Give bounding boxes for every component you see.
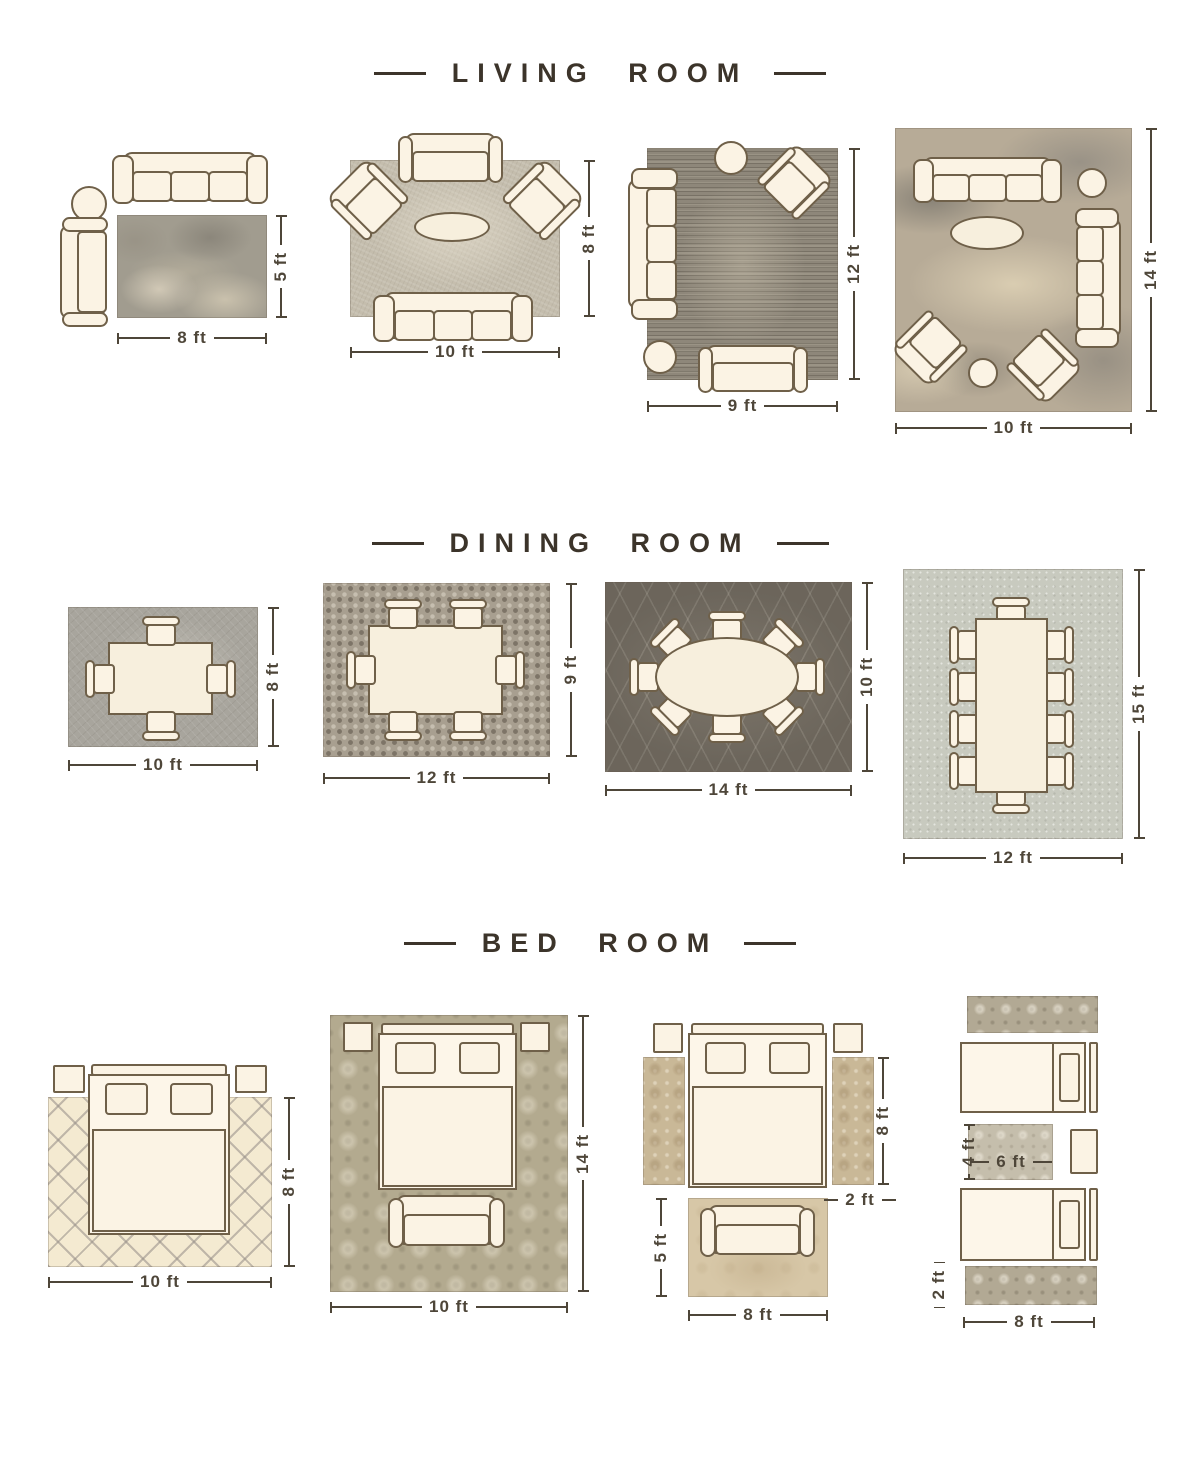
dimension-label: 14 ft: [702, 780, 756, 800]
loveseat: [698, 345, 808, 393]
dining-chair: [1044, 670, 1074, 704]
dimension-label: 14 ft: [573, 1127, 593, 1181]
dining-table: [368, 625, 503, 715]
dining-chair: [346, 653, 376, 687]
dining-table: [108, 642, 213, 715]
dining-chair: [495, 653, 525, 687]
dimension-label: 5 ft: [651, 1226, 671, 1270]
dimension-label: 8 ft: [263, 655, 283, 699]
side-table-round: [1077, 168, 1107, 198]
twin-bed: [960, 1042, 1098, 1113]
loveseat: [398, 133, 503, 183]
dimension-height: 10 ft: [856, 582, 878, 772]
dimension-label: 14 ft: [1141, 243, 1161, 297]
coffee-table-oval: [414, 212, 490, 242]
dimension-foot-rug-width: 8 ft: [688, 1305, 828, 1325]
dimension-label: 15 ft: [1129, 677, 1149, 731]
dimension-width: 8 ft: [117, 328, 267, 348]
dimension-label: 8 ft: [1007, 1312, 1051, 1332]
dimension-label: 9 ft: [721, 396, 765, 416]
dimension-width: 10 ft: [330, 1297, 568, 1317]
dimension-label: 8 ft: [579, 217, 599, 261]
nightstand: [520, 1022, 550, 1052]
dining-table-oval: [655, 637, 799, 717]
dimension-runner-width: 8 ft: [963, 1312, 1095, 1332]
runner-rug-top: [967, 996, 1098, 1033]
dimension-label: 12 ft: [986, 848, 1040, 868]
dimension-label: 9 ft: [561, 648, 581, 692]
dimension-label: 8 ft: [170, 328, 214, 348]
side-table-round: [643, 340, 677, 374]
dining-chair: [1044, 628, 1074, 662]
nightstand: [235, 1065, 267, 1093]
dimension-runner-width: 2 ft: [824, 1190, 896, 1210]
dimension-width: 10 ft: [48, 1272, 272, 1292]
dimension-label: 10 ft: [136, 755, 190, 775]
sofa: [1075, 208, 1121, 348]
dimension-width: 14 ft: [605, 780, 852, 800]
dining-chair: [85, 662, 115, 696]
dimension-width: 9 ft: [647, 396, 838, 416]
dining-chair: [451, 599, 485, 629]
dimension-label: 5 ft: [271, 245, 291, 289]
dimension-label: 12 ft: [410, 768, 464, 788]
dimension-width: 10 ft: [895, 418, 1132, 438]
dimension-height: 14 ft: [1140, 128, 1162, 412]
nightstand: [1070, 1129, 1098, 1174]
bed: [688, 1023, 827, 1188]
coffee-table-oval: [950, 216, 1024, 250]
dining-chair: [144, 711, 178, 741]
dimension-middle-rug-width: 6 ft: [970, 1152, 1052, 1172]
dimension-width: 12 ft: [323, 768, 550, 788]
dimension-height: 9 ft: [560, 583, 582, 757]
dimension-height: 8 ft: [262, 607, 284, 747]
side-table-round: [968, 358, 998, 388]
dimension-height: 5 ft: [270, 215, 292, 318]
dimension-label: 10 ft: [428, 342, 482, 362]
nightstand: [833, 1023, 863, 1053]
runner-rug-right: [832, 1057, 874, 1185]
dimension-height: 14 ft: [572, 1015, 594, 1292]
dimension-width: 12 ft: [903, 848, 1123, 868]
dimension-label: 6 ft: [989, 1152, 1033, 1172]
dimension-runner-height: 8 ft: [872, 1057, 894, 1185]
side-table-round: [714, 141, 748, 175]
dimension-label: 2 ft: [929, 1263, 949, 1307]
sofa: [112, 152, 268, 204]
dining-chair: [1044, 754, 1074, 788]
dimension-runner-height: 2 ft: [928, 1262, 950, 1308]
dimension-height: 12 ft: [843, 148, 865, 380]
dining-chair: [795, 660, 825, 694]
runner-rug-bottom: [965, 1266, 1097, 1305]
dimension-foot-rug-height: 5 ft: [650, 1198, 672, 1297]
dimension-label: 8 ft: [279, 1160, 299, 1204]
bench-loveseat: [388, 1195, 505, 1248]
dining-chair: [386, 711, 420, 741]
dining-chair: [144, 616, 178, 646]
bed: [88, 1064, 230, 1235]
dimension-height: 8 ft: [278, 1097, 300, 1267]
loveseat: [60, 217, 108, 327]
runner-rug-left: [643, 1057, 685, 1185]
dimension-width: 10 ft: [350, 342, 560, 362]
dining-chair: [710, 713, 744, 743]
dining-chair: [451, 711, 485, 741]
bench-loveseat: [700, 1205, 815, 1257]
nightstand: [53, 1065, 85, 1093]
dimension-label: 10 ft: [857, 650, 877, 704]
dimension-label: 8 ft: [736, 1305, 780, 1325]
sofa: [373, 292, 533, 342]
rug-8x5: [117, 215, 267, 318]
dimension-height: 8 ft: [578, 160, 600, 317]
bed: [378, 1023, 517, 1190]
dining-chair: [1044, 712, 1074, 746]
dining-chair: [386, 599, 420, 629]
sofa: [913, 157, 1062, 203]
dimension-label: 12 ft: [844, 237, 864, 291]
dimension-label: 10 ft: [987, 418, 1041, 438]
nightstand: [653, 1023, 683, 1053]
rug-size-guide: LIVING ROOM 5 ft 8 ft: [0, 0, 1200, 1467]
dimension-label: 2 ft: [838, 1190, 882, 1210]
dining-table: [975, 618, 1048, 793]
twin-bed: [960, 1188, 1098, 1261]
sofa: [628, 168, 678, 320]
dimension-label: 10 ft: [133, 1272, 187, 1292]
dining-chair: [206, 662, 236, 696]
dimension-width: 10 ft: [68, 755, 258, 775]
dimension-label: 8 ft: [873, 1099, 893, 1143]
dimension-height: 15 ft: [1128, 569, 1150, 839]
dimension-label: 10 ft: [422, 1297, 476, 1317]
nightstand: [343, 1022, 373, 1052]
